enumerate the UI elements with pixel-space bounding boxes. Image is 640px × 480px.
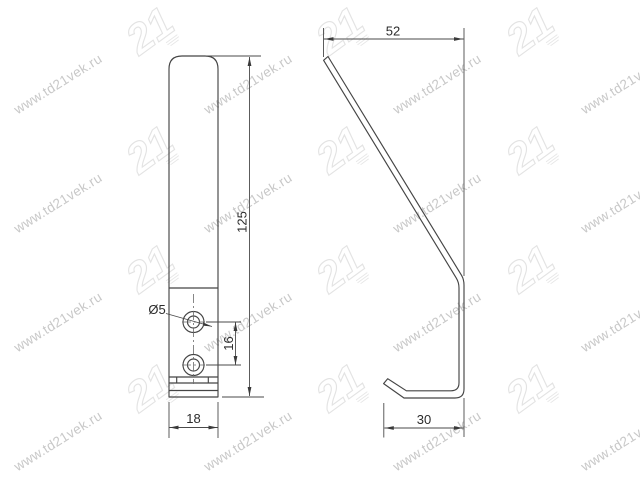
dim-hook-top-depth-value: 52 xyxy=(386,24,400,39)
dim-plate-width: 18 xyxy=(169,402,218,438)
dim-hole-spacing-value: 16 xyxy=(221,336,236,350)
dim-plate-width-value: 18 xyxy=(186,411,200,426)
drawing-canvas: www.td21vek.ru 21 xyxy=(0,0,640,480)
dim-overall-height-value: 125 xyxy=(235,211,250,233)
hole-diameter-label: Ø5 xyxy=(148,302,165,317)
technical-drawing-svg: www.td21vek.ru 21 xyxy=(0,0,640,480)
watermark-layer xyxy=(10,0,640,475)
hole-diameter-callout: Ø5 xyxy=(148,302,212,327)
dim-hook-bottom-depth-value: 30 xyxy=(417,412,431,427)
